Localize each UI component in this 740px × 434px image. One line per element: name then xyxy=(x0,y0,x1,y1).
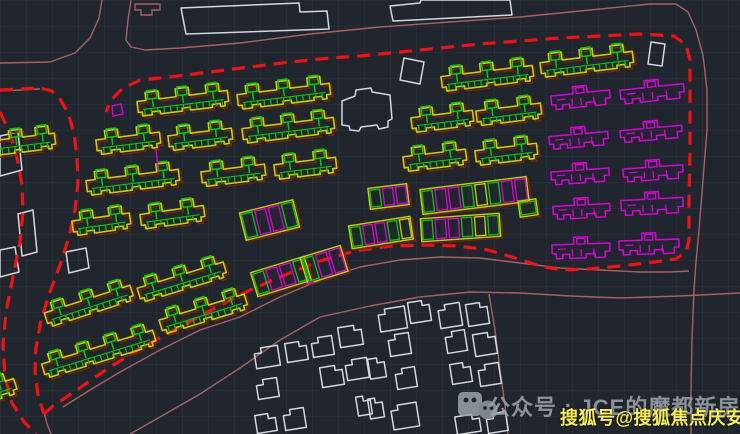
adjacent-building-outline[interactable] xyxy=(18,210,37,256)
residential-building-outline[interactable] xyxy=(440,56,537,94)
stair-core-stem xyxy=(492,108,493,116)
stair-core-stem xyxy=(289,162,290,170)
residential-building-outline[interactable] xyxy=(241,108,338,146)
apartment-building-outline[interactable] xyxy=(550,161,609,185)
cad-viewport[interactable]: 公众号 : JCE的魔都新房 搜狐号@搜狐焦点庆安站 xyxy=(0,0,740,434)
unit-cell xyxy=(461,217,472,237)
apartment-building-outline[interactable] xyxy=(550,83,611,110)
stair-core-stem xyxy=(152,283,154,291)
unit-cell xyxy=(448,187,461,209)
balcony-line xyxy=(102,141,156,148)
stair-core-stem xyxy=(143,133,144,141)
stair-core-stem xyxy=(213,91,214,99)
unit-divider xyxy=(652,92,653,99)
stair-core-stem xyxy=(426,115,427,123)
neighboring-house-outline[interactable] xyxy=(407,299,431,323)
detail-line xyxy=(626,133,635,134)
apartment-building-outline[interactable] xyxy=(619,232,680,255)
unit-cell xyxy=(515,179,528,201)
residential-building-outline[interactable] xyxy=(134,252,230,305)
neighboring-house-outline[interactable] xyxy=(395,367,418,390)
stair-core-stem xyxy=(16,137,17,145)
stair-core-stem xyxy=(253,92,254,100)
road-annotation-shape[interactable] xyxy=(135,4,160,15)
unit-cell xyxy=(241,212,257,238)
unit-cell xyxy=(448,218,459,238)
core-symbol xyxy=(646,122,654,128)
unit-divider xyxy=(665,130,666,137)
residential-building-outline[interactable] xyxy=(236,74,334,112)
apartment-building-outline[interactable] xyxy=(548,124,609,149)
stair-core-stem xyxy=(102,178,103,186)
neighboring-house-outline[interactable] xyxy=(450,362,473,385)
residential-building-outline[interactable] xyxy=(410,101,477,136)
neighboring-house-outline[interactable] xyxy=(345,357,370,380)
neighboring-house-outline[interactable] xyxy=(338,324,364,347)
apartment-building-outline[interactable] xyxy=(552,236,611,259)
stair-core-stem xyxy=(586,56,587,64)
stair-core-stem xyxy=(314,84,315,92)
unit-cell xyxy=(375,222,387,242)
townhouse-row-outline[interactable] xyxy=(420,176,531,216)
neighboring-house-outline[interactable] xyxy=(320,364,345,387)
core-symbol xyxy=(648,161,656,167)
core-symbol xyxy=(576,87,585,93)
stair-core-stem xyxy=(112,137,113,145)
neighboring-house-outline[interactable] xyxy=(255,413,278,434)
stair-core-stem xyxy=(84,350,86,358)
stair-core-stem xyxy=(257,126,258,134)
stair-core-stem xyxy=(184,133,185,141)
stair-core-stem xyxy=(209,265,211,273)
stair-core-stem xyxy=(215,129,216,137)
unit-divider xyxy=(572,99,573,106)
apartment-building-outline[interactable] xyxy=(619,77,685,105)
residential-building-outline[interactable] xyxy=(71,203,134,238)
magenta-marker-quad[interactable] xyxy=(112,104,123,116)
watermark-sohu-text: 搜狐号@搜狐焦点庆安站 xyxy=(560,404,740,430)
stair-core-stem xyxy=(217,169,218,177)
stair-core-stem xyxy=(187,207,188,215)
residential-building-outline[interactable] xyxy=(136,81,232,119)
stair-core-stem xyxy=(174,315,176,323)
unit-divider xyxy=(643,93,644,100)
stair-core-stem xyxy=(115,214,116,222)
balcony-line xyxy=(146,215,199,223)
unit-divider xyxy=(642,132,643,139)
core-symbol xyxy=(647,81,656,87)
building-footprint xyxy=(273,149,337,179)
neighboring-house-outline[interactable] xyxy=(444,330,467,354)
stair-core-stem xyxy=(87,218,88,226)
unit-cell xyxy=(268,205,284,231)
adjacent-building-outline[interactable] xyxy=(390,0,512,21)
neighboring-house-outline[interactable] xyxy=(390,402,419,430)
residential-building-outline[interactable] xyxy=(0,123,58,160)
stair-core-stem xyxy=(156,211,157,219)
stair-core-stem xyxy=(59,307,61,315)
core-symbol xyxy=(648,193,656,199)
row-boundary xyxy=(239,200,299,240)
unit-cell xyxy=(255,209,271,235)
townhouse-row-outline[interactable] xyxy=(368,183,411,211)
balcony-line xyxy=(409,158,462,164)
neighboring-house-outline[interactable] xyxy=(377,306,407,332)
stair-core-stem xyxy=(490,148,491,156)
neighboring-house-outline[interactable] xyxy=(387,332,411,356)
site-plan-drawing[interactable] xyxy=(0,0,740,434)
building-footprint xyxy=(410,102,474,132)
apartment-building-outline[interactable] xyxy=(619,118,682,142)
balcony-line xyxy=(207,173,261,180)
stair-core-stem xyxy=(163,170,164,178)
adjacent-building-outline[interactable] xyxy=(400,58,424,84)
unit-cell xyxy=(383,187,395,205)
stair-core-stem xyxy=(517,66,518,74)
residential-building-outline[interactable] xyxy=(475,93,545,128)
stair-core-stem xyxy=(132,174,133,182)
core-symbol xyxy=(574,128,582,134)
unit-cell xyxy=(363,224,375,244)
unit-cell xyxy=(387,220,399,240)
unit-cell xyxy=(474,216,485,236)
detail-line xyxy=(557,99,565,100)
balcony-line xyxy=(174,137,228,144)
adjacent-building-outline[interactable] xyxy=(181,3,329,34)
road-edge-line[interactable] xyxy=(0,0,102,63)
unit-cell xyxy=(350,226,362,246)
row-boundary xyxy=(349,216,414,248)
residential-building-outline[interactable] xyxy=(85,160,183,198)
stair-core-stem xyxy=(111,342,113,350)
unit-cell xyxy=(461,185,474,207)
stair-core-stem xyxy=(139,333,141,341)
stair-core-stem xyxy=(521,144,522,152)
stair-core-stem xyxy=(56,359,58,367)
balcony-line xyxy=(417,119,469,125)
apartment-building-outline[interactable] xyxy=(620,190,683,215)
unit-divider xyxy=(651,131,652,138)
unit-divider xyxy=(581,98,582,105)
neighboring-house-outline[interactable] xyxy=(256,377,280,399)
adjacent-building-outline[interactable] xyxy=(66,248,89,273)
stair-core-stem xyxy=(320,158,321,166)
unit-divider xyxy=(570,139,571,146)
unit-divider xyxy=(594,97,595,104)
stair-core-stem xyxy=(87,298,89,306)
stair-core-stem xyxy=(524,104,525,112)
unit-cell xyxy=(488,182,501,204)
residential-building-outline[interactable] xyxy=(39,321,160,381)
stair-core-stem xyxy=(182,95,183,103)
neighboring-house-outline[interactable] xyxy=(368,357,387,379)
stair-core-stem xyxy=(556,60,557,68)
residential-building-outline[interactable] xyxy=(41,276,137,330)
road-edge-line[interactable] xyxy=(44,412,51,434)
residential-building-outline[interactable] xyxy=(167,118,236,153)
stair-core-stem xyxy=(288,122,289,130)
unit-cell xyxy=(501,180,514,202)
unit-cell xyxy=(435,219,446,239)
stair-core-stem xyxy=(248,165,249,173)
townhouse-row-outline[interactable] xyxy=(251,256,314,299)
balcony-line xyxy=(280,166,332,172)
unit-cell xyxy=(488,215,499,235)
stair-core-stem xyxy=(617,52,618,60)
stair-core-stem xyxy=(116,289,118,297)
detail-line xyxy=(555,139,563,140)
stair-core-stem xyxy=(456,74,457,82)
townhouse-row-outline[interactable] xyxy=(239,199,302,242)
neighboring-house-outline[interactable] xyxy=(283,407,307,430)
unit-divider xyxy=(579,138,580,145)
residential-building-outline[interactable] xyxy=(539,42,637,80)
row-boundary xyxy=(420,177,529,215)
detail-line xyxy=(557,175,565,176)
core-symbol xyxy=(577,199,585,205)
neighboring-house-outline[interactable] xyxy=(285,340,309,362)
unit-cell xyxy=(281,202,297,228)
core-symbol xyxy=(575,164,583,170)
apartment-building-outline[interactable] xyxy=(622,158,683,182)
residential-building-outline[interactable] xyxy=(200,154,269,189)
stair-core-stem xyxy=(42,134,43,142)
residential-building-outline[interactable] xyxy=(139,196,208,232)
neighboring-house-outline[interactable] xyxy=(465,301,489,326)
stair-core-stem xyxy=(0,382,1,390)
unit-cell xyxy=(399,219,411,239)
adjacent-building-outline[interactable] xyxy=(648,42,665,66)
neighboring-house-outline[interactable] xyxy=(477,362,501,386)
detail-line xyxy=(629,172,637,173)
stair-core-stem xyxy=(457,111,458,119)
unit-divider xyxy=(592,137,593,144)
stair-core-stem xyxy=(318,118,319,126)
core-symbol xyxy=(577,238,585,244)
stair-core-stem xyxy=(202,306,204,314)
detail-line xyxy=(627,93,636,94)
building-footprint xyxy=(474,135,538,165)
adjacent-building-outline[interactable] xyxy=(342,88,392,131)
townhouse-row-outline[interactable] xyxy=(420,213,503,244)
stair-core-stem xyxy=(419,154,420,162)
townhouse-row-outline[interactable] xyxy=(518,199,540,220)
stair-core-stem xyxy=(283,88,284,96)
stair-core-stem xyxy=(180,274,182,282)
residential-building-outline[interactable] xyxy=(273,148,340,183)
neighboring-house-outline[interactable] xyxy=(311,335,335,357)
stair-core-stem xyxy=(487,70,488,78)
unit-divider xyxy=(666,91,667,98)
apartment-building-outline[interactable] xyxy=(553,197,611,220)
neighboring-house-outline[interactable] xyxy=(437,302,462,328)
stair-core-stem xyxy=(152,99,153,107)
unit-cell xyxy=(475,184,488,206)
neighboring-house-outline[interactable] xyxy=(472,331,497,356)
balcony-line xyxy=(481,152,533,158)
unit-cell xyxy=(395,186,407,204)
balcony-ticks xyxy=(51,343,150,373)
core-symbol xyxy=(645,234,653,240)
residential-building-outline[interactable] xyxy=(95,122,164,157)
unit-cell xyxy=(435,189,448,211)
residential-building-outline[interactable] xyxy=(402,140,470,175)
residential-building-outline[interactable] xyxy=(474,134,541,169)
stair-core-stem xyxy=(450,150,451,158)
